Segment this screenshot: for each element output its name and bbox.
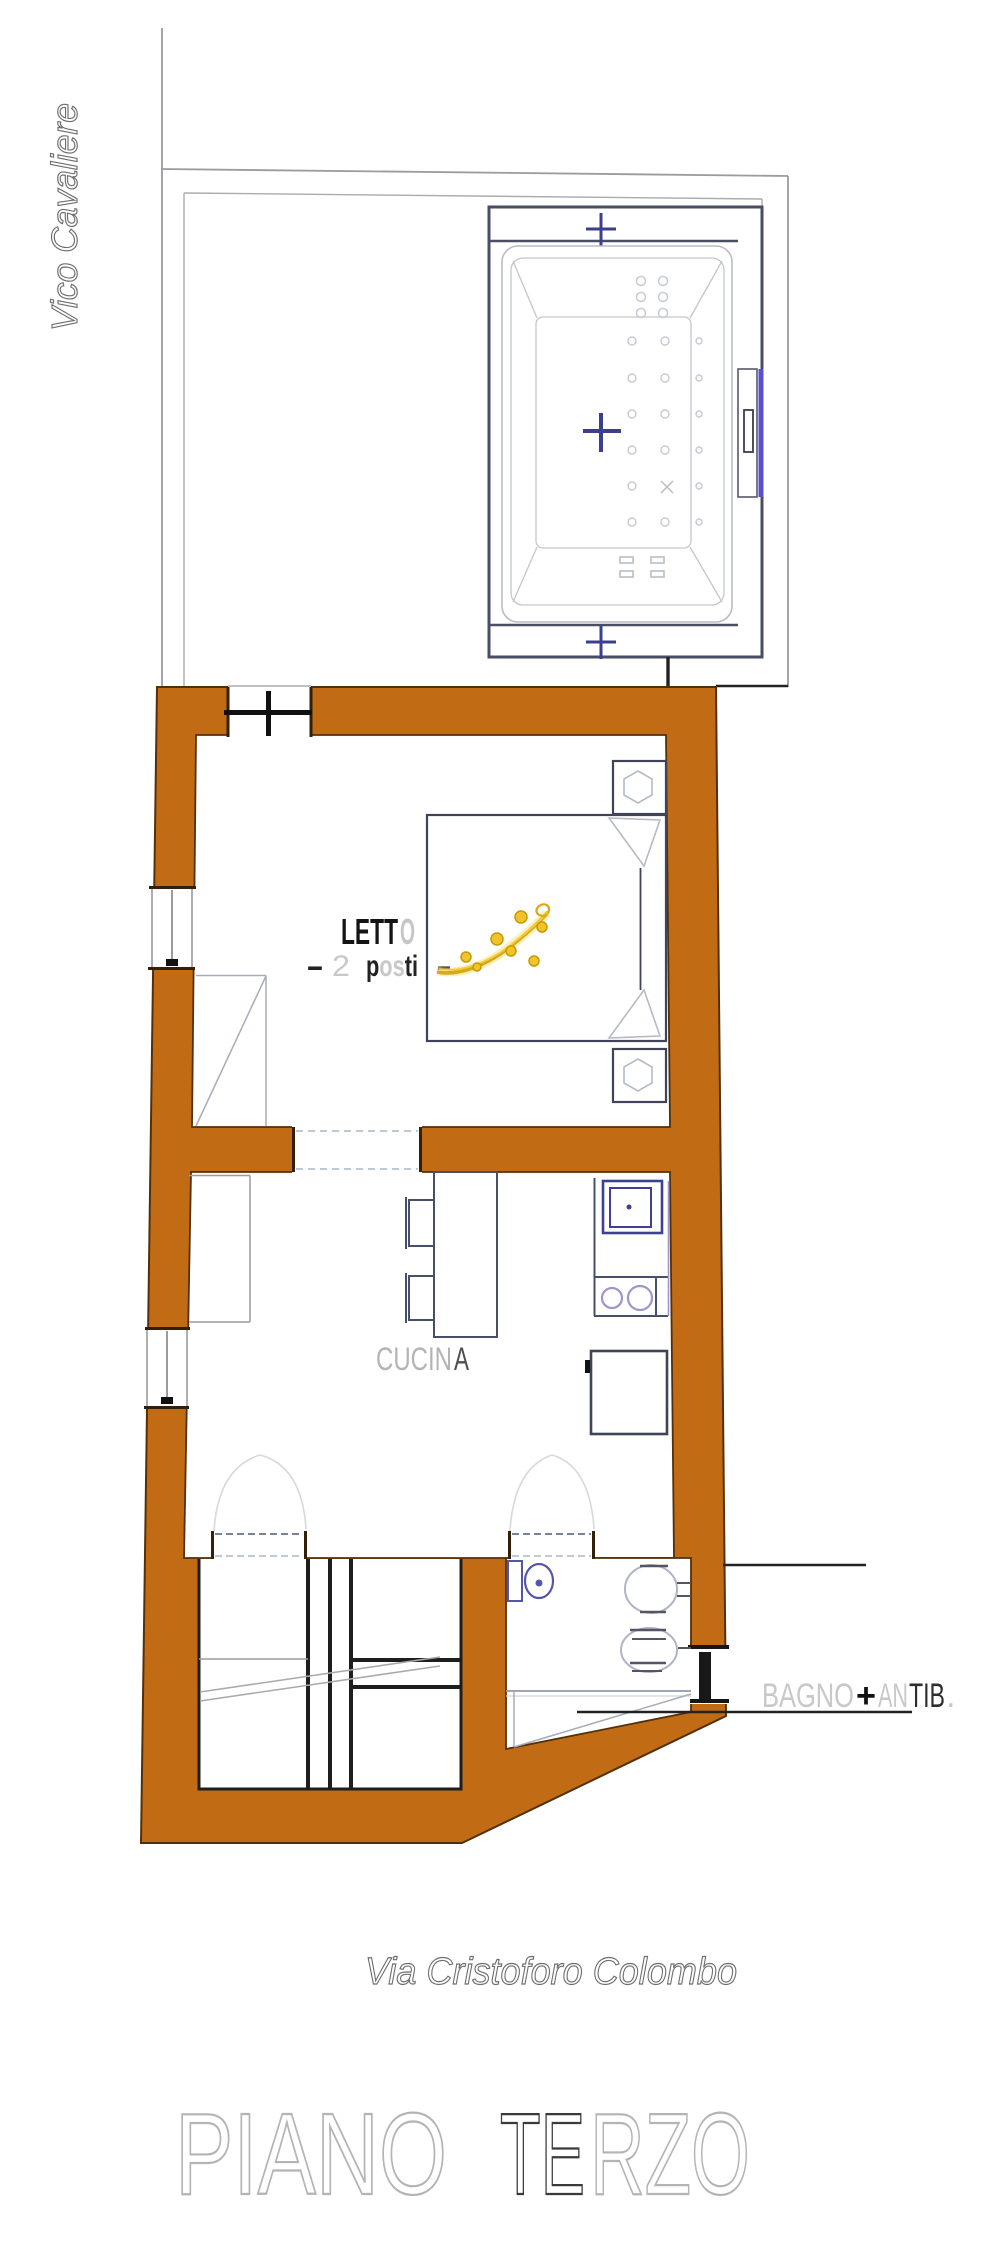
- svg-text:posti: posti: [366, 950, 418, 983]
- svg-text:Vico Cavaliere: Vico Cavaliere: [44, 103, 85, 331]
- svg-text:CUCIN: CUCIN: [376, 1341, 452, 1377]
- svg-text:PIANO: PIANO: [175, 2089, 447, 2219]
- svg-text:BAGNO: BAGNO: [762, 1677, 854, 1715]
- svg-text:2: 2: [332, 950, 350, 983]
- svg-text:AN: AN: [878, 1677, 908, 1715]
- svg-text:TIB: TIB: [909, 1677, 945, 1715]
- svg-text:TE: TE: [500, 2089, 585, 2219]
- svg-text:LETT: LETT: [341, 911, 398, 952]
- svg-text:.: .: [946, 1677, 955, 1715]
- svg-text:-: -: [306, 950, 324, 983]
- svg-text:+: +: [856, 1677, 876, 1715]
- svg-text:O: O: [400, 911, 415, 952]
- svg-text:A: A: [454, 1341, 469, 1377]
- svg-text:RZO: RZO: [590, 2089, 750, 2219]
- svg-text:Via Cristoforo Colombo: Via Cristoforo Colombo: [365, 1951, 737, 1993]
- svg-text:-: -: [436, 950, 452, 983]
